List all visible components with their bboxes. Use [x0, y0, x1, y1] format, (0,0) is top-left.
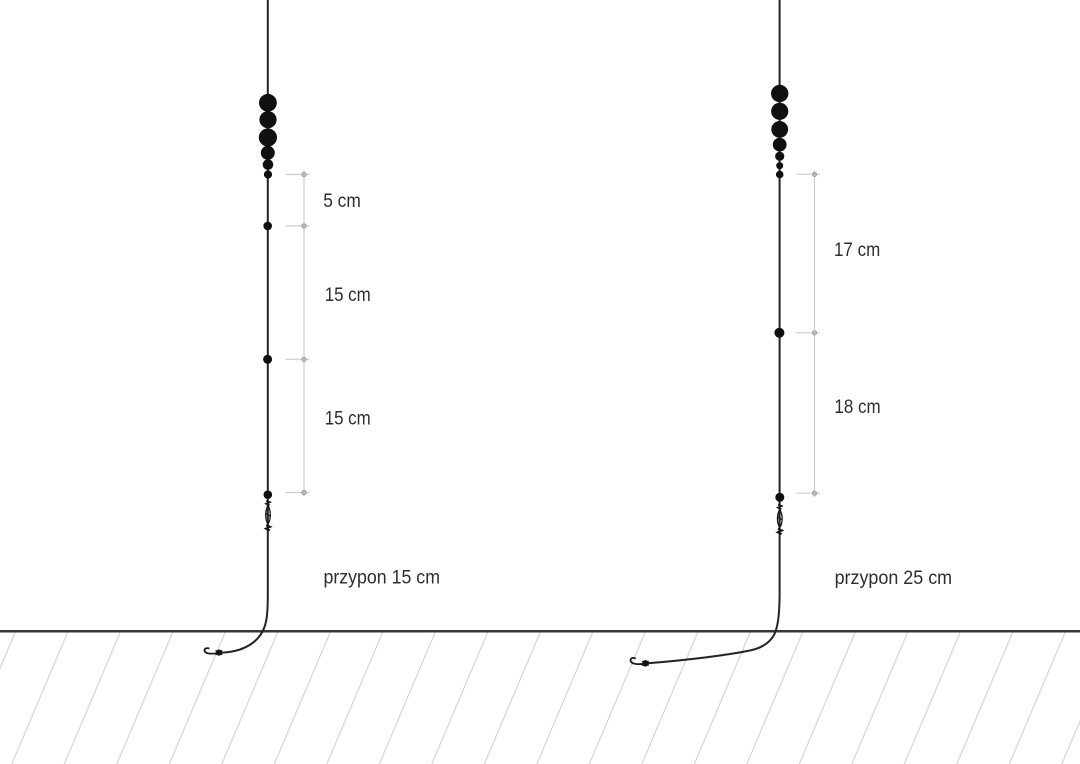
- svg-text:18 cm: 18 cm: [834, 396, 880, 418]
- svg-text:15 cm: 15 cm: [325, 284, 371, 306]
- svg-text:przypon 15 cm: przypon 15 cm: [324, 567, 441, 589]
- svg-text:5 cm: 5 cm: [323, 190, 361, 212]
- svg-text:15 cm: 15 cm: [325, 408, 371, 430]
- svg-text:17 cm: 17 cm: [834, 239, 880, 261]
- svg-text:przypon 25 cm: przypon 25 cm: [835, 567, 953, 589]
